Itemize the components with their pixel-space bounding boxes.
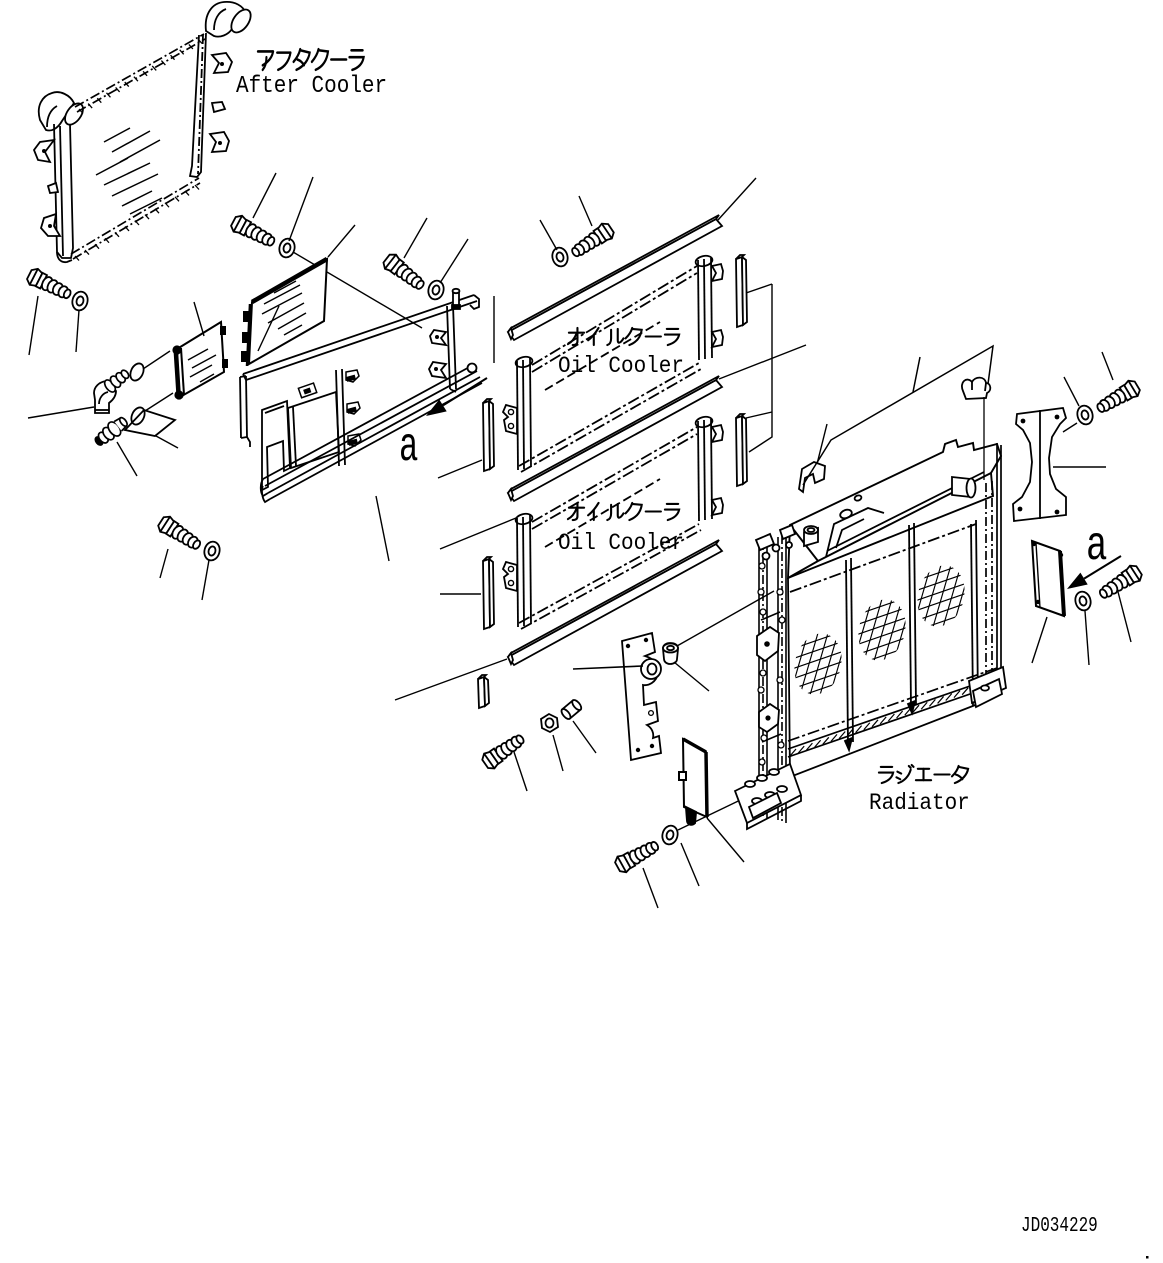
svg-text:a: a <box>399 421 418 475</box>
svg-text:Radiator: Radiator <box>869 789 970 816</box>
svg-text:Oil Cooler: Oil Cooler <box>558 529 684 556</box>
svg-text:JD034229: JD034229 <box>1021 1214 1098 1238</box>
svg-text:a: a <box>1086 519 1107 574</box>
svg-text:Oil Cooler: Oil Cooler <box>558 352 684 379</box>
svg-text:After Cooler: After Cooler <box>236 72 387 100</box>
